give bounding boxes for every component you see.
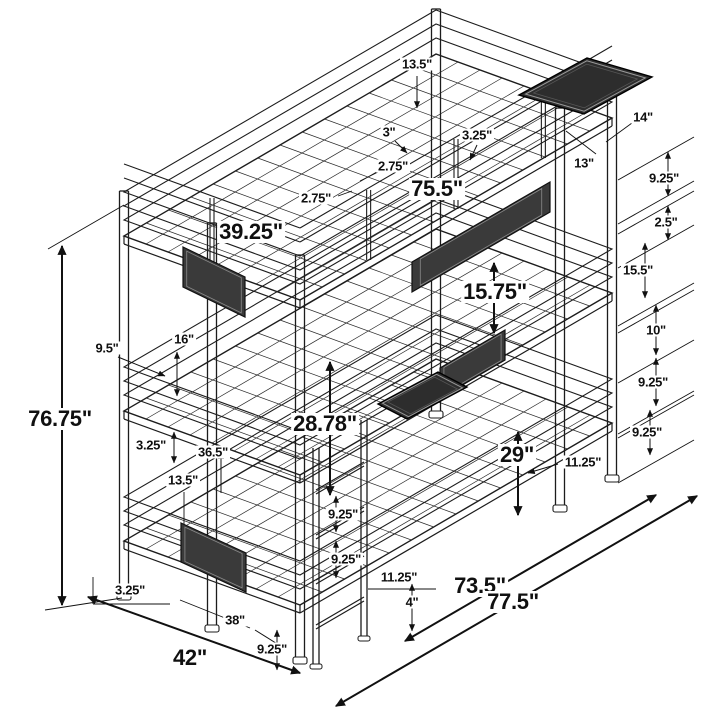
- bed-frame: [117, 9, 619, 669]
- bed-line-art: [0, 0, 720, 720]
- triple-bunk-bed-dimension-diagram: 13.5"3"3.25"2.75"75.5"2.75"39.25"13"14"9…: [0, 0, 720, 720]
